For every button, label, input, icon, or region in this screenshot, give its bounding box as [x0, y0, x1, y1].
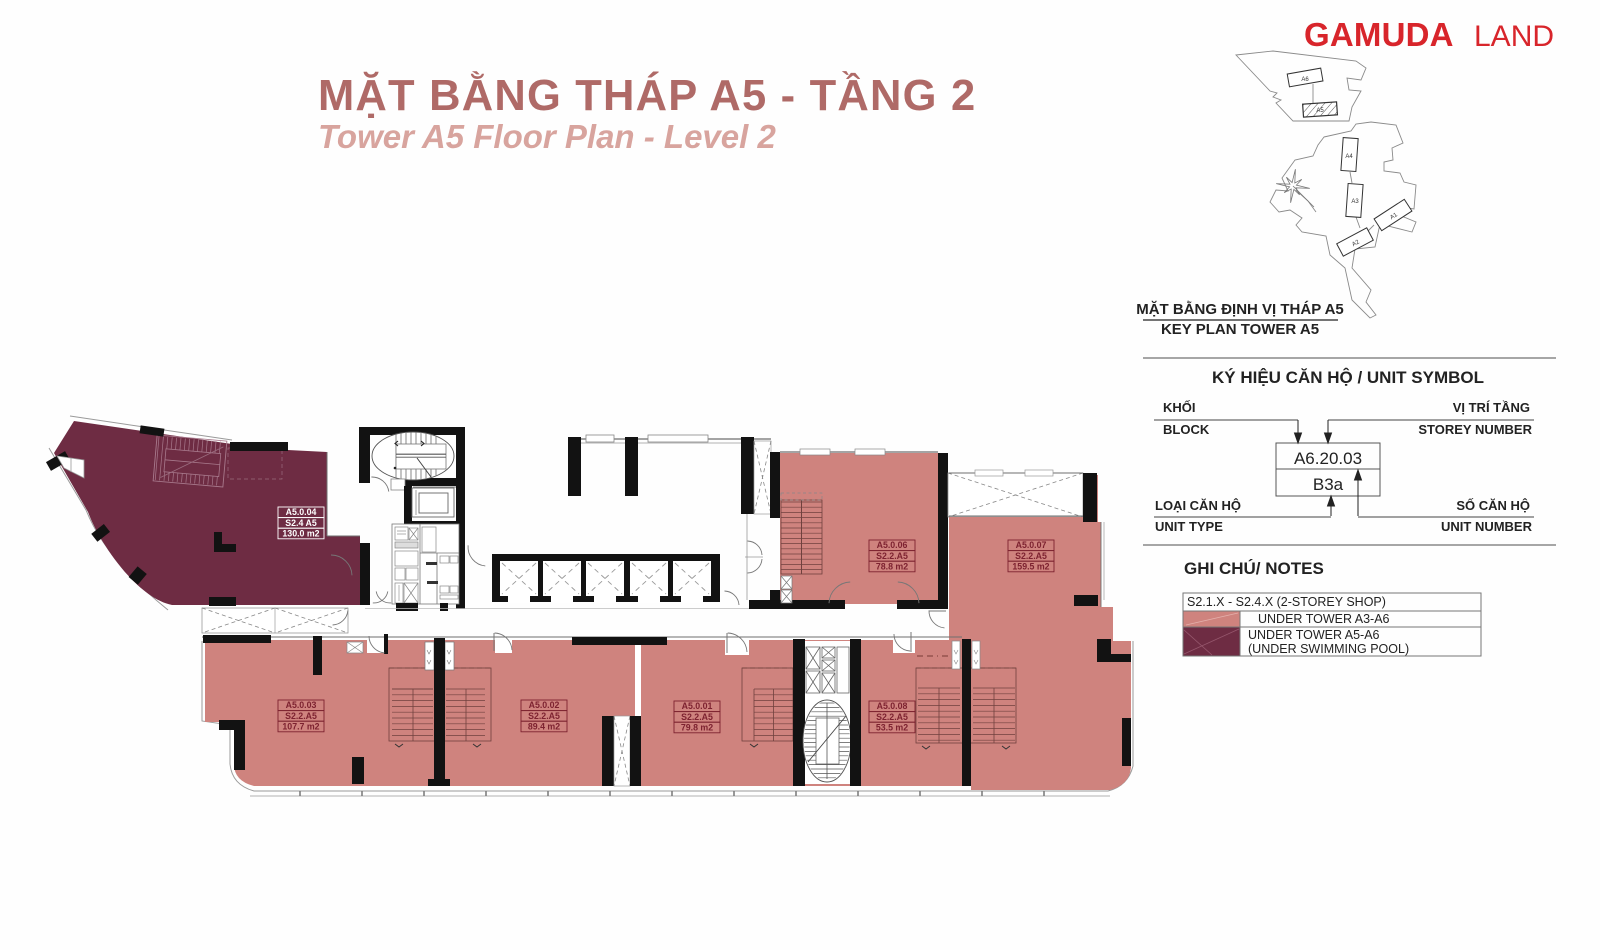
svg-text:GAMUDA: GAMUDA [1304, 16, 1454, 53]
svg-text:S2.4 A5: S2.4 A5 [285, 518, 317, 528]
svg-text:A5.0.06: A5.0.06 [877, 540, 908, 550]
svg-text:STOREY NUMBER: STOREY NUMBER [1418, 422, 1532, 437]
svg-text:A5.0.08: A5.0.08 [877, 701, 908, 711]
svg-text:89.4 m2: 89.4 m2 [528, 721, 560, 731]
svg-text:S2.1.X - S2.4.X (2-STOREY SHOP: S2.1.X - S2.4.X (2-STOREY SHOP) [1187, 595, 1386, 609]
svg-text:LAND: LAND [1474, 20, 1554, 53]
svg-text:159.5 m2: 159.5 m2 [1012, 561, 1049, 571]
svg-text:BLOCK: BLOCK [1163, 422, 1210, 437]
svg-text:S2.2.A5: S2.2.A5 [876, 712, 908, 722]
svg-text:S2.2.A5: S2.2.A5 [876, 551, 908, 561]
svg-text:KHỐI: KHỐI [1163, 400, 1196, 415]
svg-text:Tower A5 Floor Plan - Level 2: Tower A5 Floor Plan - Level 2 [318, 118, 776, 155]
svg-text:UNDER TOWER A3-A6: UNDER TOWER A3-A6 [1258, 612, 1390, 626]
svg-text:KÝ HIỆU CĂN HỘ / UNIT SYMBOL: KÝ HIỆU CĂN HỘ / UNIT SYMBOL [1212, 368, 1484, 387]
svg-text:79.8 m2: 79.8 m2 [681, 722, 713, 732]
svg-text:S2.2.A5: S2.2.A5 [681, 712, 713, 722]
svg-text:130.0 m2: 130.0 m2 [282, 528, 319, 538]
svg-text:SỐ CĂN HỘ: SỐ CĂN HỘ [1456, 498, 1530, 513]
svg-text:A3: A3 [1351, 199, 1359, 205]
svg-text:MẶT BẰNG ĐỊNH VỊ THÁP A5: MẶT BẰNG ĐỊNH VỊ THÁP A5 [1136, 300, 1344, 318]
svg-text:S2.2.A5: S2.2.A5 [528, 711, 560, 721]
svg-text:A5.0.07: A5.0.07 [1016, 540, 1047, 550]
svg-text:UNIT NUMBER: UNIT NUMBER [1441, 519, 1533, 534]
svg-text:53.5 m2: 53.5 m2 [876, 722, 908, 732]
svg-text:A5.0.01: A5.0.01 [682, 701, 713, 711]
svg-text:A5: A5 [1316, 108, 1324, 114]
svg-text:(UNDER SWIMMING POOL): (UNDER SWIMMING POOL) [1248, 642, 1409, 656]
svg-text:S2.2.A5: S2.2.A5 [285, 711, 317, 721]
svg-text:78.8 m2: 78.8 m2 [876, 561, 908, 571]
svg-text:A6.20.03: A6.20.03 [1294, 449, 1362, 468]
svg-text:LOẠI CĂN HỘ: LOẠI CĂN HỘ [1155, 498, 1241, 513]
svg-text:GHI CHÚ/ NOTES: GHI CHÚ/ NOTES [1184, 559, 1324, 578]
svg-text:B3a: B3a [1313, 475, 1344, 494]
svg-text:107.7 m2: 107.7 m2 [282, 721, 319, 731]
svg-text:KEY PLAN TOWER A5: KEY PLAN TOWER A5 [1161, 321, 1319, 338]
svg-text:A5.0.02: A5.0.02 [529, 700, 560, 710]
svg-text:UNIT TYPE: UNIT TYPE [1155, 519, 1223, 534]
svg-text:VỊ TRÍ TẦNG: VỊ TRÍ TẦNG [1453, 400, 1530, 415]
svg-text:A6: A6 [1301, 77, 1309, 83]
svg-text:A5.0.03: A5.0.03 [286, 700, 317, 710]
svg-text:MẶT BẰNG THÁP A5 - TẦNG 2: MẶT BẰNG THÁP A5 - TẦNG 2 [318, 70, 976, 120]
svg-text:A5.0.04: A5.0.04 [286, 507, 317, 517]
svg-text:S2.2.A5: S2.2.A5 [1015, 551, 1047, 561]
svg-text:A4: A4 [1345, 154, 1353, 160]
svg-text:UNDER TOWER A5-A6: UNDER TOWER A5-A6 [1248, 628, 1380, 642]
